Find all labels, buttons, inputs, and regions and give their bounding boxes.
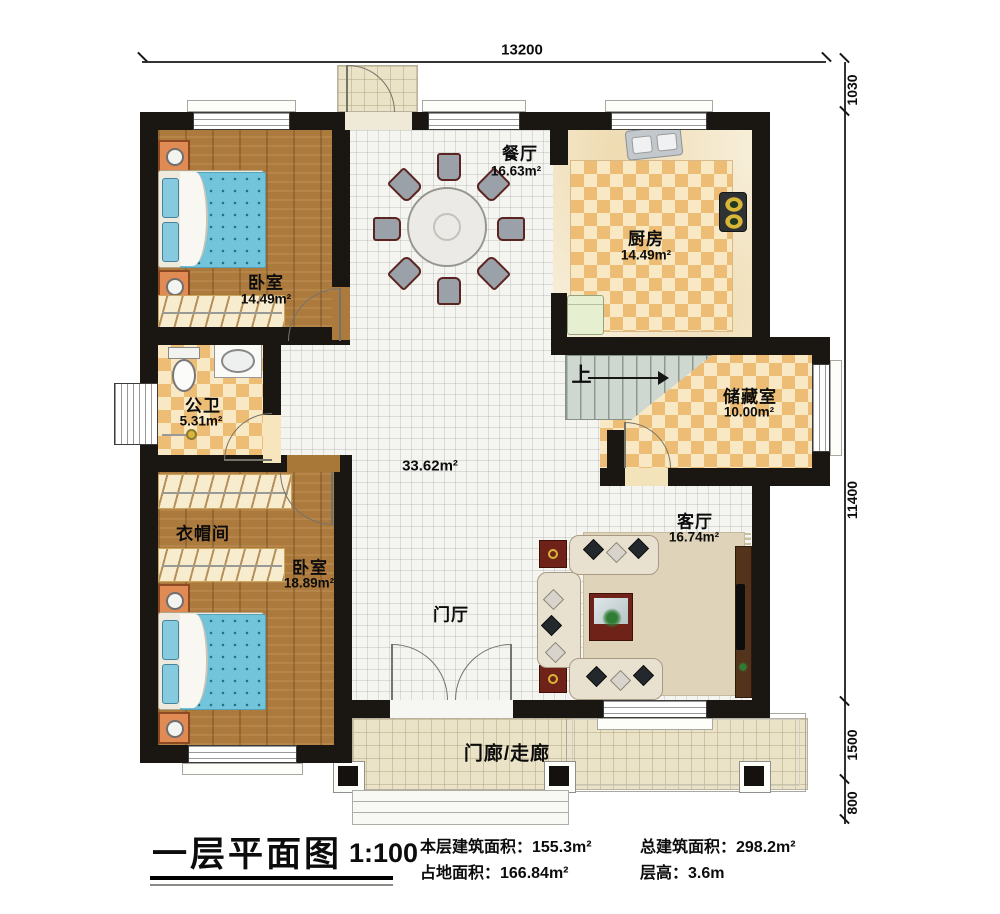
dim-line-top <box>142 61 826 63</box>
label-foyer: 门厅 <box>433 601 469 626</box>
chair <box>373 217 401 241</box>
stair-arrow-line <box>588 377 660 379</box>
window-sill <box>605 100 713 112</box>
window-storage <box>812 364 830 452</box>
plan-title: 一层平面图 <box>152 826 342 877</box>
dim-right-value: 800 <box>844 791 860 814</box>
info-floor-height: 层高：3.6m <box>640 859 724 883</box>
dim-top-value: 13200 <box>501 42 543 59</box>
stove <box>719 192 747 232</box>
chair <box>437 153 461 181</box>
nightstand <box>158 712 190 744</box>
porch-column <box>333 761 365 793</box>
shower-head <box>186 429 197 440</box>
coffee-table <box>589 593 633 641</box>
label-kitchen: 厨房 <box>628 225 664 250</box>
label-bedroom1: 卧室 <box>248 269 284 294</box>
window-sill <box>182 763 303 775</box>
dim-right-value: 1030 <box>844 74 860 105</box>
window-bedroom2 <box>188 745 297 763</box>
area-bedroom1: 14.49m² <box>241 292 291 307</box>
nightstand <box>158 140 190 172</box>
chair <box>437 277 461 305</box>
label-cloakroom: 衣帽间 <box>176 520 230 545</box>
wall-storage-top <box>553 337 830 355</box>
pillow <box>162 664 179 704</box>
clock-icon <box>166 148 184 166</box>
door-leaf <box>391 644 393 700</box>
clock-icon <box>166 720 184 738</box>
side-table <box>539 665 567 693</box>
dim-right-value: 11400 <box>844 481 860 519</box>
opening-front-door <box>390 700 513 718</box>
label-dining: 餐厅 <box>502 140 538 165</box>
window-sill <box>187 100 296 112</box>
window-bedroom1 <box>193 112 290 130</box>
burner <box>725 214 743 229</box>
area-bathroom: 5.31m² <box>180 414 223 429</box>
dim-right-value: 1500 <box>844 729 860 760</box>
opening-cloakroom <box>287 455 340 472</box>
wall-living-right <box>752 486 770 718</box>
shower-hose <box>162 434 188 436</box>
closet-rack <box>158 474 292 509</box>
label-porch: 门廊/走廊 <box>464 739 550 766</box>
closet-rack <box>158 548 285 582</box>
wall-kitchen-right <box>752 112 770 355</box>
door-leaf <box>624 422 626 468</box>
area-kitchen: 14.49m² <box>621 248 671 263</box>
sink-basin <box>656 133 678 152</box>
pillow <box>162 222 179 262</box>
wall-kitchen-left-stub <box>551 293 567 355</box>
label-stairs-up: 上 <box>572 359 593 388</box>
toilet-bowl <box>172 359 196 392</box>
clock-icon <box>166 278 184 296</box>
fridge <box>567 295 604 335</box>
dim-line-right <box>844 62 846 824</box>
door-leaf <box>331 472 333 525</box>
info-total-area: 总建筑面积：298.2m² <box>640 833 796 857</box>
kitchen-sink <box>625 125 684 161</box>
area-hall: 33.62m² <box>402 458 458 475</box>
opening-storage <box>625 468 668 486</box>
dining-table-ring <box>433 213 461 241</box>
entry-step <box>352 812 569 825</box>
clock-icon <box>166 592 184 610</box>
window-dining <box>428 112 520 130</box>
floor-plan-canvas: 餐厅 16.63m² 厨房 14.49m² 卧室 14.49m² 公卫 5.31… <box>0 0 1000 914</box>
plan-scale: 1:100 <box>349 838 418 869</box>
pillow <box>162 620 179 660</box>
door-leaf <box>224 459 272 461</box>
info-floor-area: 本层建筑面积：155.3m² <box>420 833 592 857</box>
wall-stair-stub <box>607 430 625 486</box>
door-leaf <box>510 644 512 700</box>
window-sill <box>830 360 842 456</box>
plant <box>602 608 622 628</box>
opening-top-entry <box>345 112 412 130</box>
side-table <box>539 540 567 568</box>
info-footprint-area: 占地面积：166.84m² <box>420 859 569 883</box>
window-kitchen <box>611 112 707 130</box>
area-bedroom2: 18.89m² <box>284 576 334 591</box>
window-bathroom <box>114 383 158 445</box>
sink-basin <box>221 349 255 373</box>
pillow <box>162 178 179 218</box>
window-sill <box>597 718 713 730</box>
porch-column <box>739 761 771 793</box>
wall-dining-kitchen-stub <box>550 112 568 165</box>
door-leaf <box>346 65 348 112</box>
chair <box>497 217 525 241</box>
door-leaf <box>339 288 341 341</box>
plant <box>738 662 748 672</box>
window-living <box>603 700 707 718</box>
title-underline <box>150 876 393 880</box>
area-dining: 16.63m² <box>491 164 541 179</box>
window-sill <box>422 100 526 112</box>
stair-arrow-head <box>658 371 669 385</box>
porch-column <box>544 761 576 793</box>
burner <box>725 197 743 212</box>
area-living: 16.74m² <box>669 530 719 545</box>
title-underline-thin <box>150 884 393 886</box>
wall-suite-right <box>334 455 352 763</box>
sink-basin <box>631 135 653 154</box>
toilet-tank <box>168 347 200 359</box>
tv <box>736 584 745 650</box>
area-storage: 10.00m² <box>724 405 774 420</box>
